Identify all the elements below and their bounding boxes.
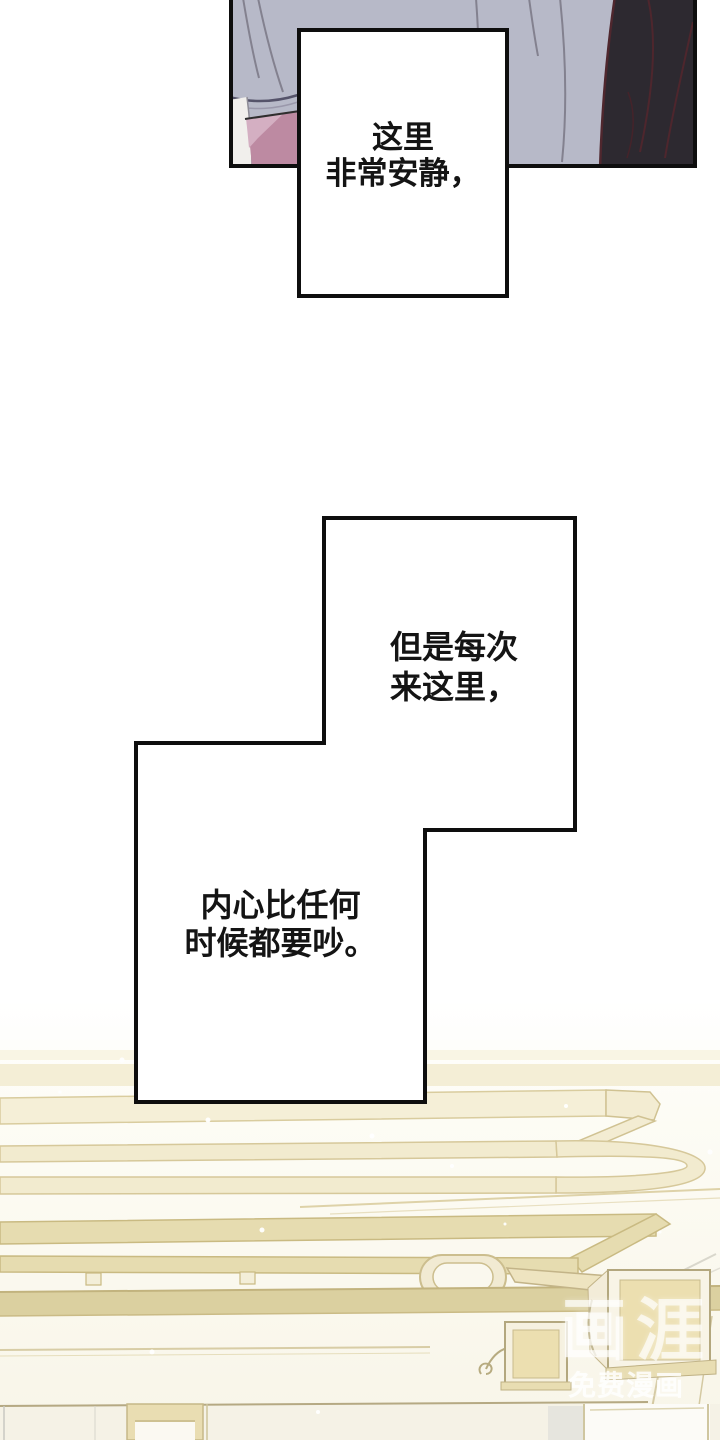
caption-2-text: 但是每次 来这里， — [390, 627, 518, 707]
track-tab — [86, 1273, 101, 1285]
caption-line: 时候都要吵。 — [136, 924, 425, 962]
wall-gray-panel — [548, 1406, 584, 1440]
watermark-logo: 画涯 — [560, 1300, 712, 1364]
comic-page: 这里 非常安静， 但是每次 来这里， 内心比任何 时候都要吵。 画涯 免费漫画 — [0, 0, 720, 1440]
watermark-subtitle: 免费漫画 — [568, 1372, 712, 1400]
caption-line: 但是每次 — [390, 627, 518, 667]
stepped-caption-box — [0, 510, 720, 1110]
wall-pillar-inset — [135, 1422, 195, 1440]
caption-line: 内心比任何 — [136, 886, 425, 924]
spotlight-panel-1 — [513, 1330, 559, 1378]
track-tab — [240, 1272, 255, 1284]
caption-1-text: 这里 非常安静， — [301, 120, 505, 192]
caption-3-text: 内心比任何 时候都要吵。 — [136, 886, 425, 962]
caption-line: 这里 — [301, 120, 505, 156]
stepped-caption-outline — [136, 518, 575, 1102]
caption-line: 非常安静， — [301, 156, 505, 192]
dark-garment — [600, 0, 697, 170]
rounded-rail-lamp-inner — [433, 1263, 493, 1291]
watermark: 画涯 免费漫画 — [560, 1300, 712, 1400]
caption-line: 来这里， — [390, 667, 518, 707]
rail-bottom-run — [0, 1177, 556, 1194]
caption-box-1: 这里 非常安静， — [297, 28, 509, 298]
